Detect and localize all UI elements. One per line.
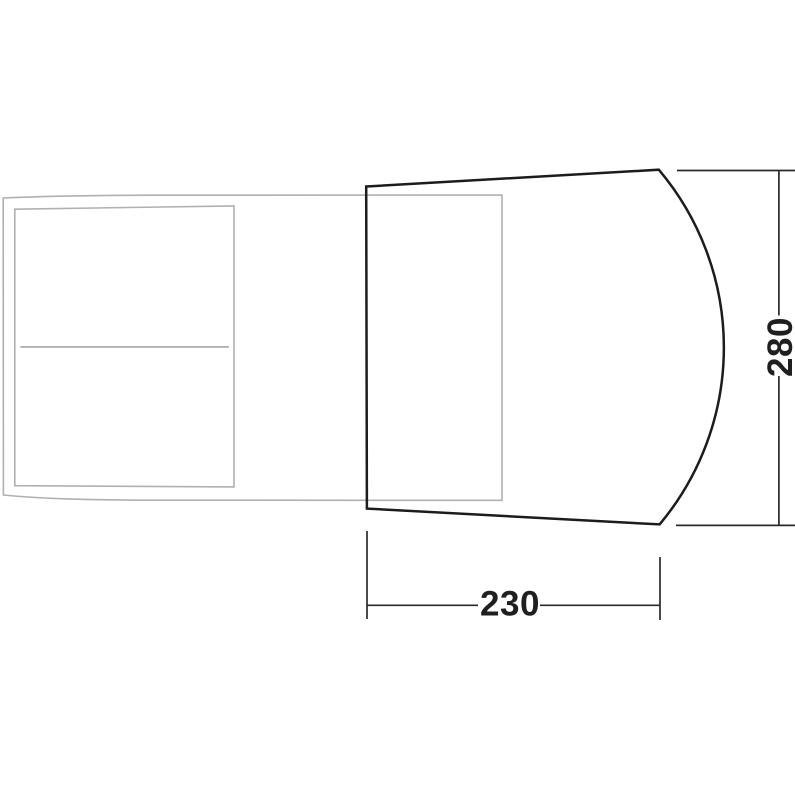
svg-text:230: 230: [480, 585, 540, 624]
svg-text:280: 280: [761, 317, 795, 377]
